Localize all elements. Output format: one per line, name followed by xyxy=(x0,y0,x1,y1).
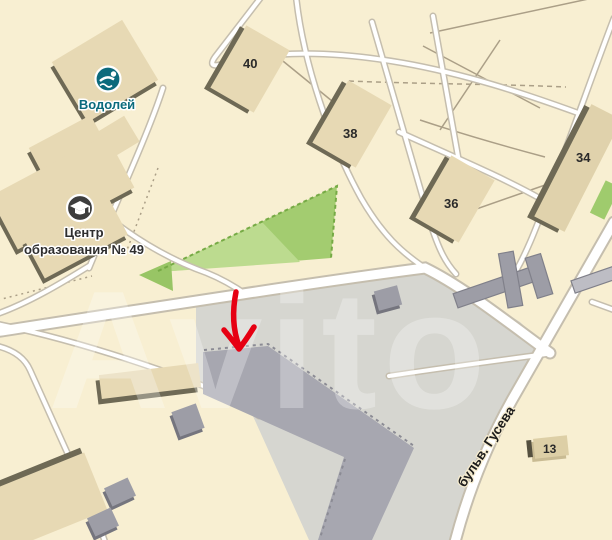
label-13: 13 xyxy=(543,442,557,456)
poi-vodoley-label: Водолей xyxy=(79,97,135,112)
label-40: 40 xyxy=(243,56,257,71)
watermark: Avito xyxy=(48,256,492,444)
poi-education-label-line1: Центр xyxy=(64,225,103,240)
map-canvas[interactable]: 40 38 36 34 13 бульв. Гусева Водолей Цен… xyxy=(0,0,612,540)
map-screenshot: 40 38 36 34 13 бульв. Гусева Водолей Цен… xyxy=(0,0,612,540)
label-36: 36 xyxy=(444,196,458,211)
label-34: 34 xyxy=(576,150,591,165)
poi-education-label-line2: образования № 49 xyxy=(24,242,144,257)
label-38: 38 xyxy=(343,126,357,141)
